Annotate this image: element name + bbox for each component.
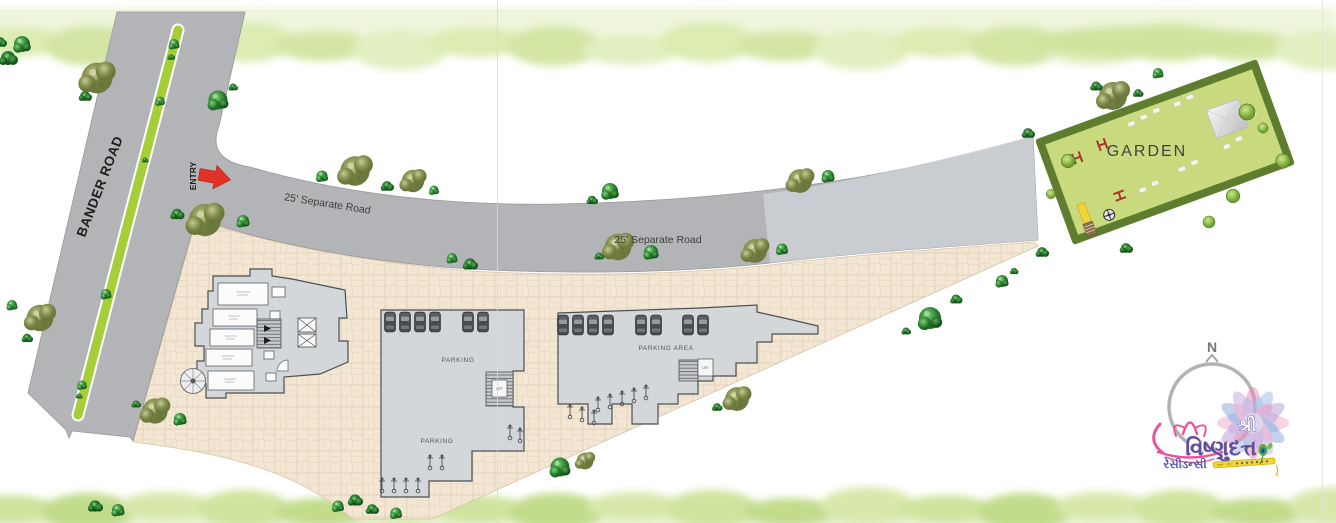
car-icon	[430, 312, 441, 332]
hedge-shape	[1030, 26, 1270, 58]
site-plan: GARDEN LIFT PARKING P	[0, 0, 1336, 523]
car-icon	[415, 312, 426, 332]
car-icon	[651, 315, 662, 335]
car-icon	[463, 312, 474, 332]
car-icon	[698, 315, 709, 335]
car-icon	[603, 315, 614, 335]
stair-core	[679, 360, 698, 381]
entry-label: ENTRY	[188, 161, 198, 190]
tree-icon	[1239, 104, 1255, 120]
tree-icon	[1061, 154, 1075, 168]
car-icon	[636, 315, 647, 335]
car-icon	[400, 312, 411, 332]
car-icon	[588, 315, 599, 335]
lift-label: LIFT	[702, 366, 709, 370]
tree-icon	[1226, 189, 1240, 203]
car-icon	[478, 312, 489, 332]
stair-core	[257, 319, 281, 348]
garden-label: GARDEN	[1107, 143, 1187, 160]
logo-prefix: શ્રી	[1238, 415, 1257, 435]
logo-subtitle: રેસીડન્સી	[1163, 456, 1207, 471]
parking-label-upper: PARKING	[442, 357, 475, 364]
site-plan-page: GARDEN LIFT PARKING P	[0, 0, 1336, 523]
car-icon	[558, 315, 569, 335]
parking-area-label: PARKING AREA	[638, 345, 693, 352]
car-icon	[385, 312, 396, 332]
car-icon	[683, 315, 694, 335]
tree-icon	[1046, 189, 1056, 199]
tree-icon	[1258, 123, 1268, 133]
parking-label-lower: PARKING	[421, 438, 454, 445]
compass-north-label: N	[1207, 339, 1217, 355]
spiral-stair-icon	[181, 369, 206, 394]
separate-road-label-2: 25' Separate Road	[614, 234, 701, 246]
tree-icon	[1276, 154, 1290, 168]
car-icon	[573, 315, 584, 335]
tree-icon	[1203, 216, 1215, 228]
